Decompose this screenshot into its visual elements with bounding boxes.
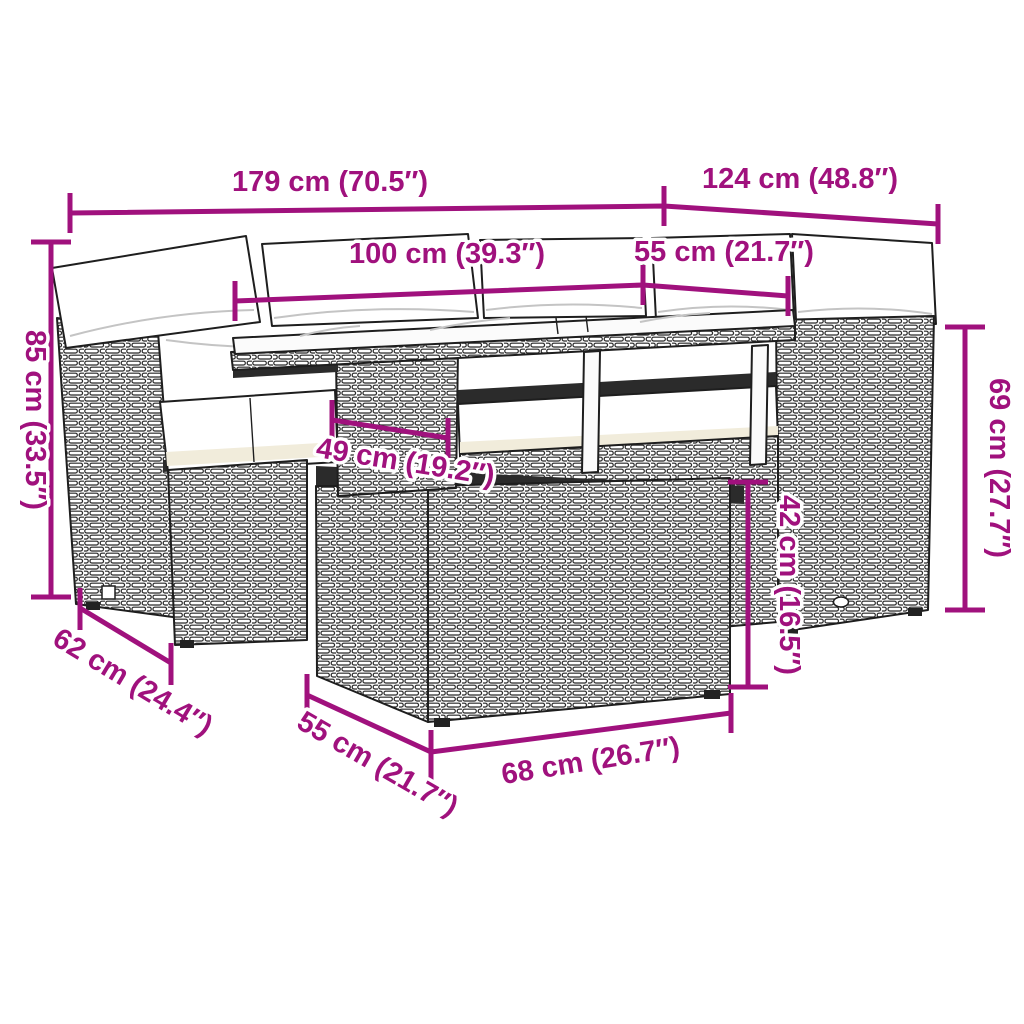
left-armrest-drain-hole (102, 586, 115, 599)
stool-front-face (428, 478, 730, 722)
left-sofa-foot (180, 640, 194, 648)
stool-foot-a (434, 718, 450, 727)
dim-right-section-height: 69 cm (27.7″) (945, 327, 1015, 610)
dim-label-right-seat-depth: 55 cm (21.7″) (634, 236, 814, 268)
right-armrest-drain-hole (834, 597, 849, 607)
dim-label-total-width: 179 cm (70.5″) (232, 166, 428, 198)
left-armrest-panel (57, 318, 180, 618)
dim-label-right-section-height: 69 cm (27.7″) (983, 378, 1015, 558)
table-leg-right (750, 345, 768, 465)
furniture-dimension-diagram: 179 cm (70.5″) 124 cm (48.8″) 100 cm (39… (0, 0, 1024, 1024)
right-armrest-foot-b (908, 608, 922, 616)
back-cushion-1 (52, 236, 260, 348)
dim-line-top (70, 206, 938, 224)
table-leg-left (582, 351, 600, 473)
dim-label-sofa-height: 85 cm (33.5″) (19, 330, 51, 510)
stool-foot-b (704, 690, 720, 699)
dim-label-total-depth: 124 cm (48.8″) (702, 163, 898, 195)
stool-left-face (316, 486, 428, 722)
left-armrest-foot (86, 602, 100, 610)
dim-total-width: 179 cm (70.5″) 124 cm (48.8″) (70, 163, 938, 244)
left-sofa-base (168, 460, 307, 645)
dim-label-table-width: 100 cm (39.3″) (349, 238, 545, 270)
dim-label-stool-height: 42 cm (16.5″) (773, 495, 805, 675)
